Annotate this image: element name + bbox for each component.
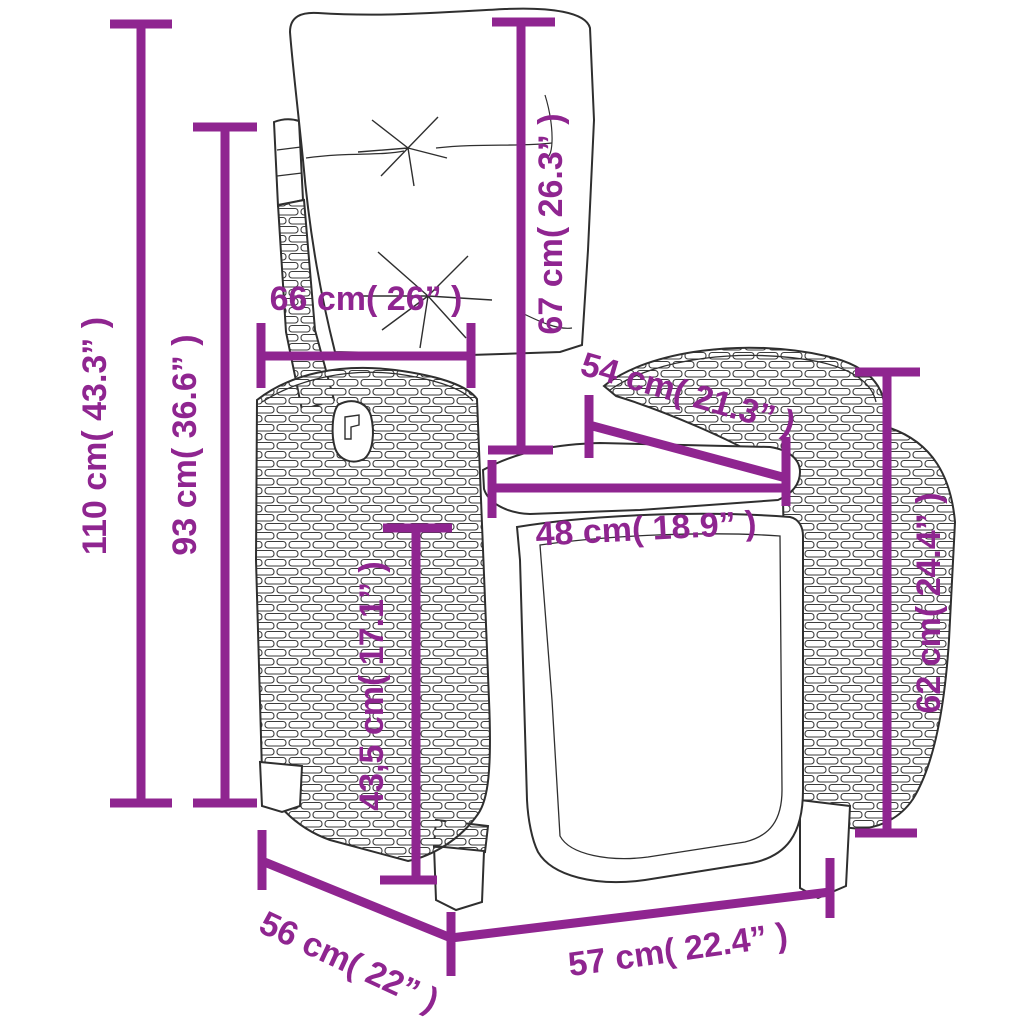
- center-leg: [434, 846, 484, 910]
- dim-label-93: 93 cm( 36.6” ): [168, 334, 202, 555]
- dim-label-67: 67 cm( 26.3” ): [534, 113, 568, 334]
- dim-label-62: 62 cm( 24.4” ): [912, 492, 946, 713]
- back-post: [274, 119, 303, 206]
- dim-label-66: 66 cm( 26” ): [270, 282, 463, 316]
- dimension-diagram: 110 cm( 43.3” ) 93 cm( 36.6” ) 66 cm( 26…: [0, 0, 1024, 1024]
- dim-label-110: 110 cm( 43.3” ): [78, 317, 112, 555]
- dim-label-43p5: 43,5 cm( 17.1” ): [355, 561, 389, 810]
- right-leg: [800, 800, 850, 898]
- front-left-leg: [260, 762, 302, 812]
- cupholder: [333, 401, 373, 461]
- chair-line-art: [0, 0, 1024, 1024]
- dim-110-line: [110, 24, 172, 803]
